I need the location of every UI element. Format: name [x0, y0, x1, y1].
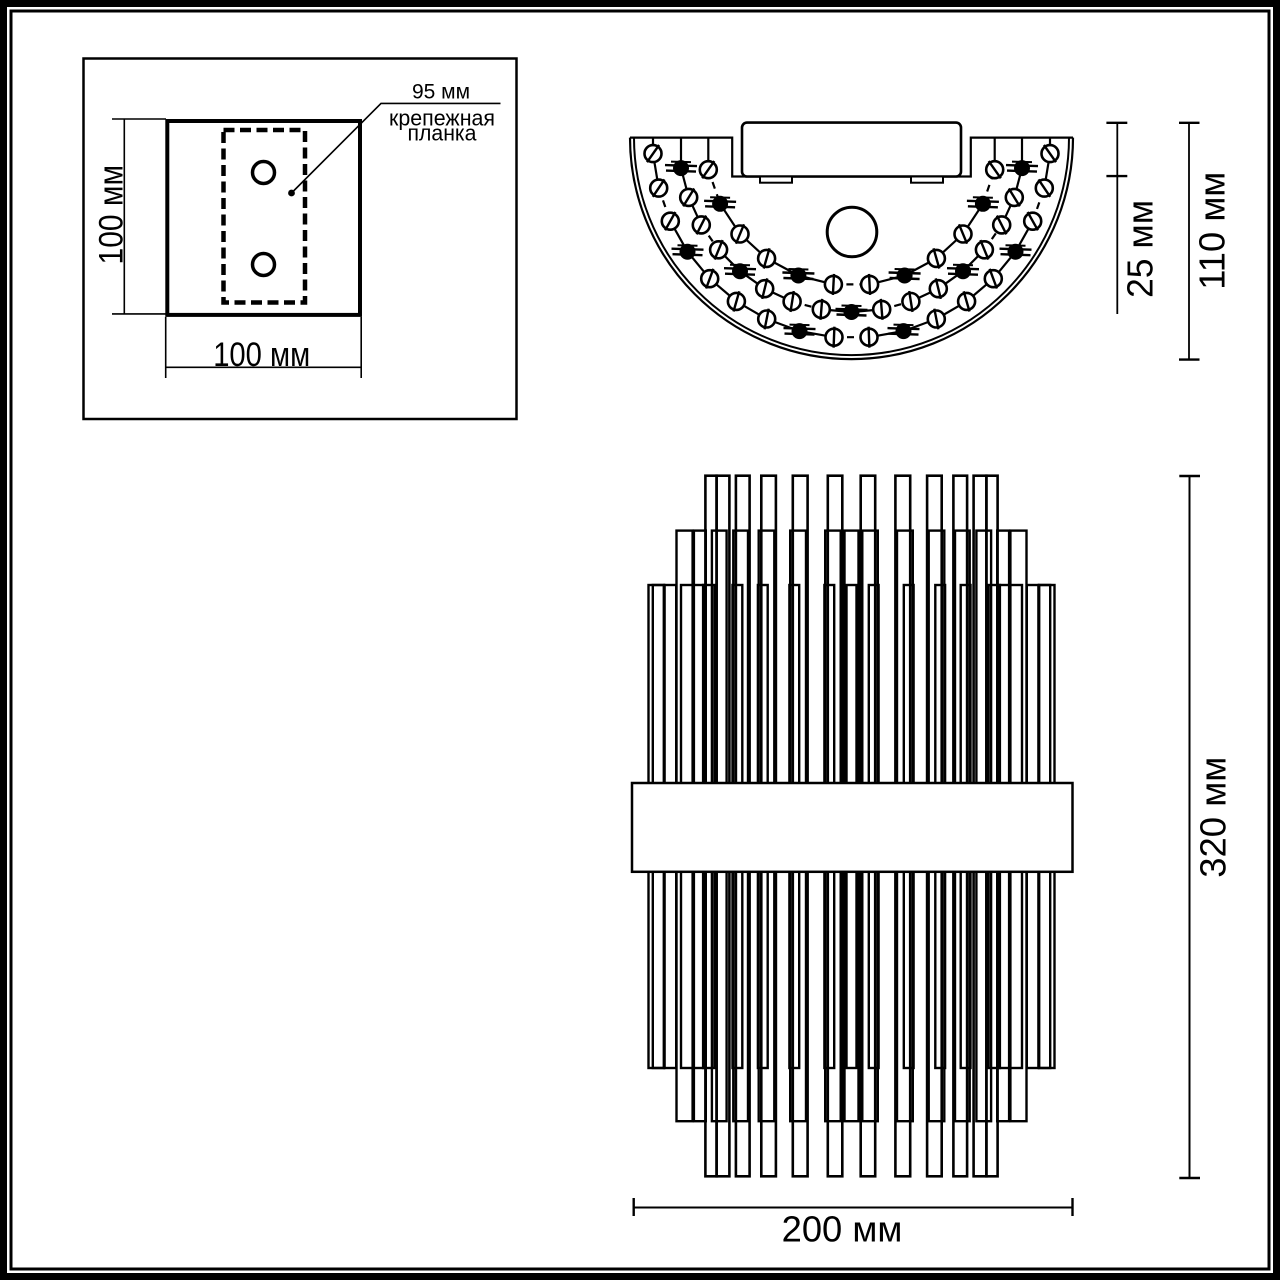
svg-text:200 мм: 200 мм [782, 1208, 903, 1249]
svg-text:25 мм: 25 мм [1119, 200, 1160, 298]
svg-text:110 мм: 110 мм [1192, 172, 1233, 290]
svg-text:320 мм: 320 мм [1192, 757, 1233, 878]
svg-text:100 мм: 100 мм [213, 336, 310, 374]
svg-text:100 мм: 100 мм [93, 165, 131, 265]
svg-text:95 мм: 95 мм [412, 81, 470, 104]
svg-text:планка: планка [408, 121, 478, 146]
